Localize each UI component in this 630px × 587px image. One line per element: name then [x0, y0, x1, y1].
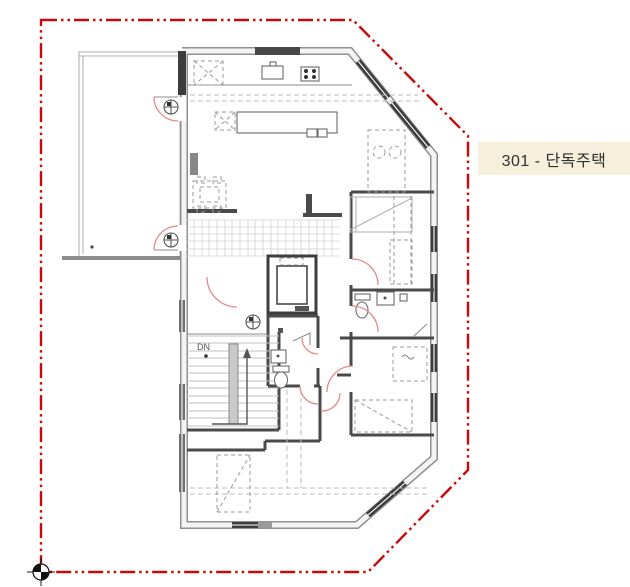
- unit-label-text: 301 - 단독주택: [502, 147, 607, 171]
- bedroom-a: [350, 130, 412, 284]
- staircase: DN: [187, 336, 279, 426]
- bedroom-b: [355, 347, 427, 432]
- dining-table: [193, 177, 226, 212]
- entry-tile-grid: [186, 220, 340, 256]
- central-bathroom: [271, 328, 310, 388]
- stairs-dn-label: DN: [197, 342, 210, 352]
- ensuite-bathroom: [355, 292, 427, 336]
- floor-plan-canvas: DN: [0, 0, 630, 587]
- elevator-shaft: [268, 256, 316, 313]
- floor-plan-page: DN: [0, 0, 630, 587]
- kitchen-fixtures: [187, 61, 352, 175]
- survey-benchmark-icon: [27, 558, 55, 586]
- family-room-furniture: [217, 455, 250, 512]
- terrace-outline: [62, 52, 186, 258]
- unit-label[interactable]: 301 - 단독주택: [478, 142, 630, 175]
